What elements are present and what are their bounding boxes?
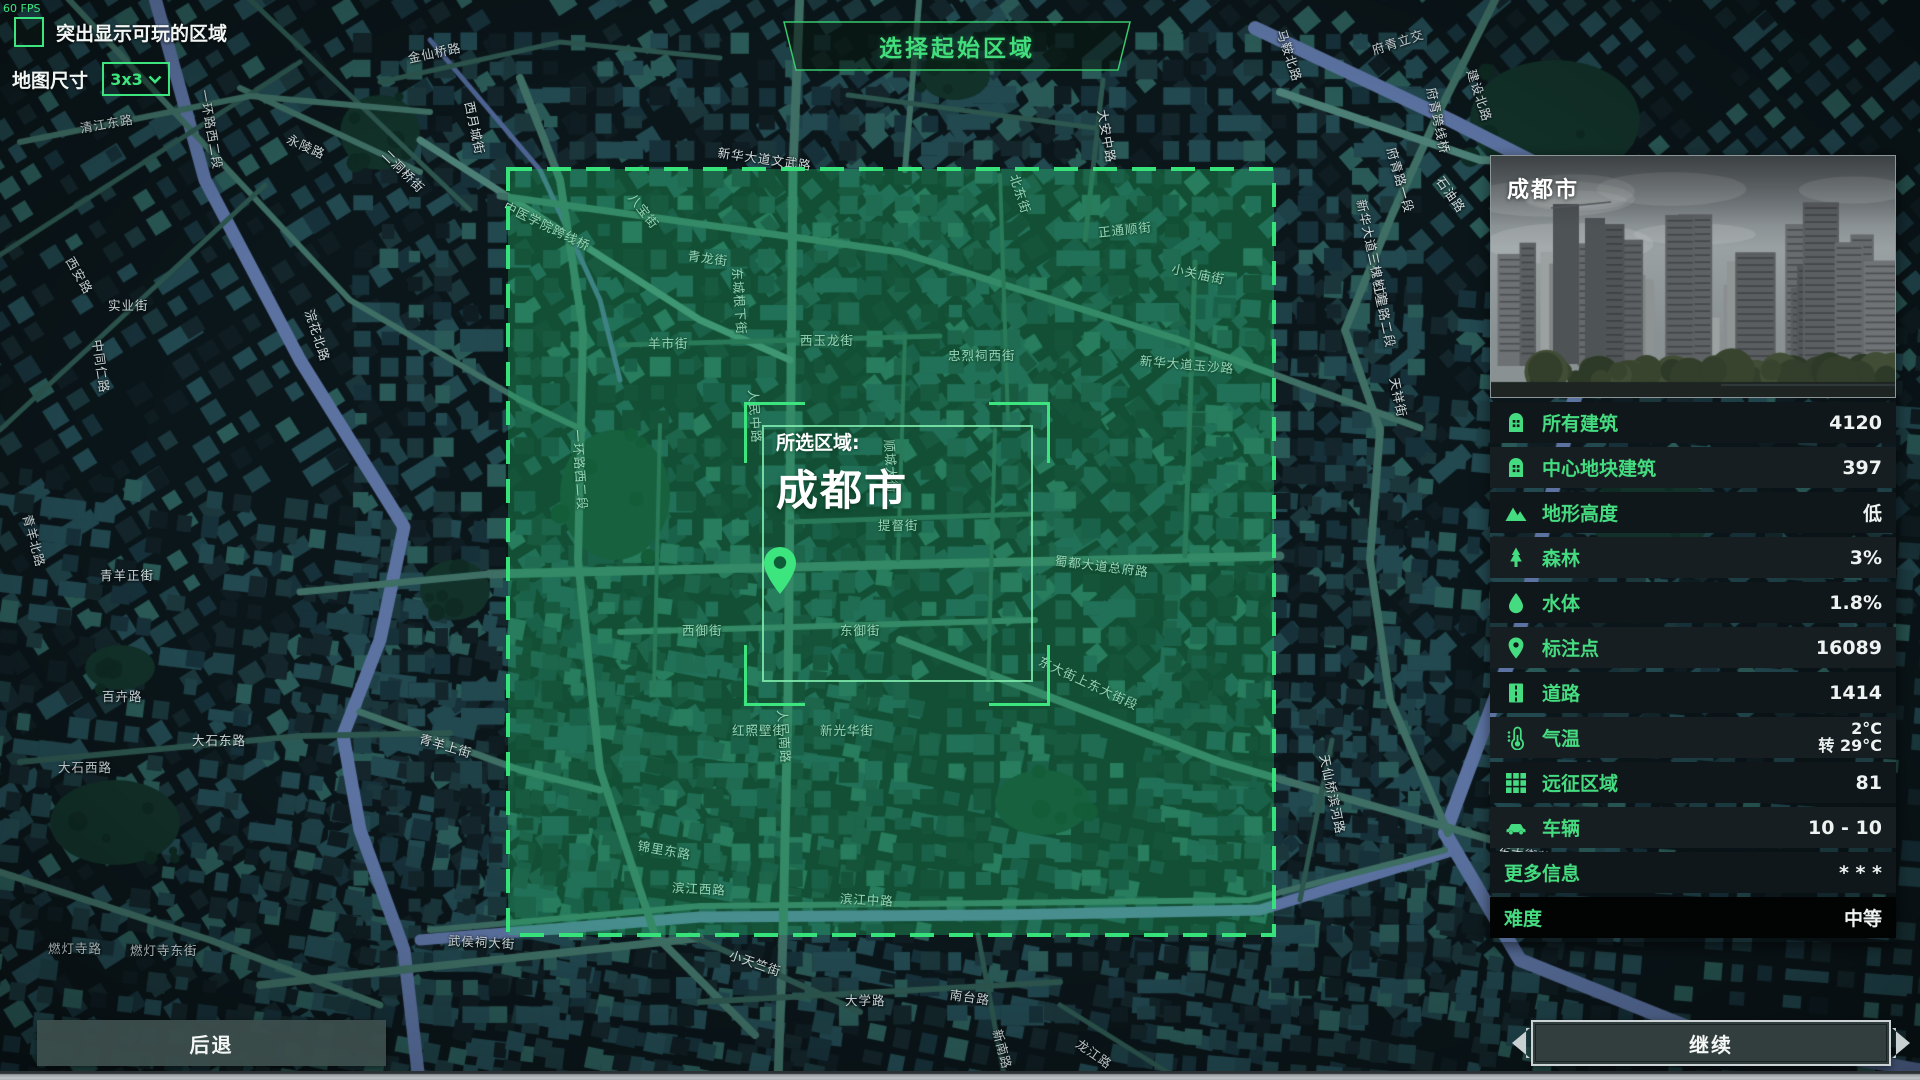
map-size-value: 3x3 [110,70,143,89]
bottom-screen-strip [0,1071,1920,1080]
map-size-row: 地图尺寸 3x3 [12,62,170,96]
stat-row-10: 车辆 10 - 10 [1490,807,1896,848]
stat-row-8: 气温 2°C转 29°C [1490,717,1896,758]
selection-prefix: 所选区域: [776,428,908,455]
stat-row-6: 标注点 16089 [1490,627,1896,668]
car-icon [1504,816,1528,840]
difficulty-row: 难度 中等 [1490,897,1896,938]
screen-title-banner: 选择起始区域 [782,21,1132,71]
mountain-icon [1504,501,1528,525]
stat-row-4: 森林 3% [1490,537,1896,578]
highlight-playable-label: 突出显示可玩的区域 [56,19,227,46]
city-stats-list: 所有建筑 4120 中心地块建筑 397 地形高度 低 森林 3% 水体 1.8… [1490,402,1896,938]
map-pin-icon [1504,636,1528,660]
continue-button-label: 继续 [1689,1029,1733,1058]
panel-city-name: 成都市 [1507,172,1579,204]
screen-title: 选择起始区域 [782,21,1132,71]
back-button[interactable]: 后退 [37,1020,386,1066]
building-icon [1504,411,1528,435]
grid-icon [1504,771,1528,795]
selection-bracket-bottom-left [744,645,805,706]
tree-icon [1504,546,1528,570]
fps-counter: 60 FPS [3,2,40,15]
road-icon [1504,681,1528,705]
continue-button[interactable]: 继续 [1531,1020,1891,1066]
chevron-down-icon [148,75,162,84]
stat-row-9: 远征区域 81 [1490,762,1896,803]
city-skyline-image: 成都市 [1490,155,1896,398]
water-drop-icon [1504,591,1528,615]
selection-city-name: 成都市 [776,457,908,518]
stat-row-5: 水体 1.8% [1490,582,1896,623]
highlight-playable-checkbox[interactable] [14,17,44,47]
map-size-select[interactable]: 3x3 [102,62,170,96]
selection-label: 所选区域: 成都市 [776,428,908,518]
stat-row-3: 地形高度 低 [1490,492,1896,533]
building-icon [1504,456,1528,480]
selection-bracket-bottom-right [989,645,1050,706]
more-info-row: 更多信息 * * * [1490,852,1896,893]
stat-row-1: 所有建筑 4120 [1490,402,1896,443]
city-info-panel: 成都市 所有建筑 4120 中心地块建筑 397 地形高度 低 森林 3% 水体… [1490,155,1896,942]
stat-row-7: 道路 1414 [1490,672,1896,713]
selection-bracket-top-right [989,402,1050,463]
stat-row-2: 中心地块建筑 397 [1490,447,1896,488]
back-button-label: 后退 [190,1029,234,1058]
highlight-playable-row: 突出显示可玩的区域 [14,17,227,47]
thermometer-icon [1504,726,1528,750]
map-size-label: 地图尺寸 [12,66,88,93]
map-select-screen: 清江东路一环路西二段永陵路中医学院跨线桥浣花北路一环路西二段青羊上街青羊正街青羊… [0,0,1920,1080]
map-pin-icon [762,546,798,596]
